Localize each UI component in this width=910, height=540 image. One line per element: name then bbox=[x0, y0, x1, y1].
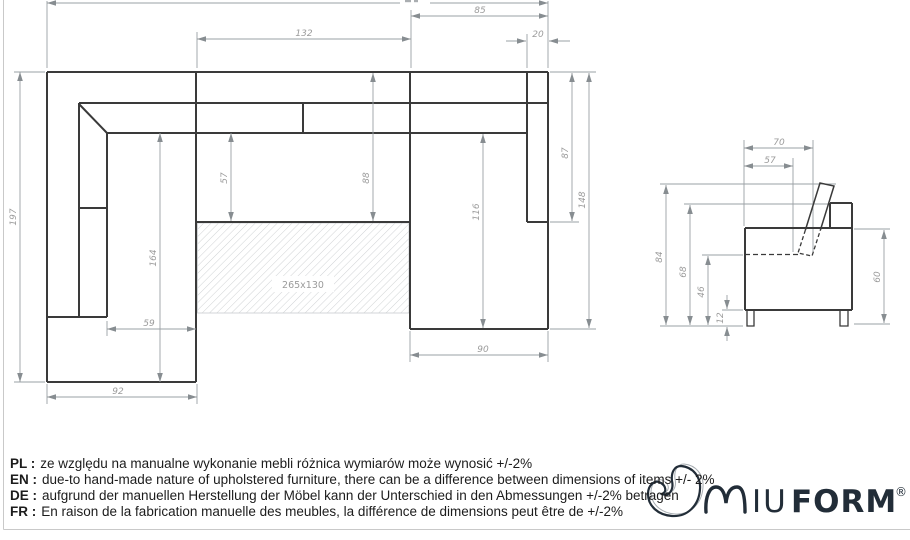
sofa-outline-side-view bbox=[745, 203, 852, 310]
dim-46-label: 46 bbox=[697, 286, 707, 298]
dim-84-label: 84 bbox=[655, 251, 665, 263]
mattress-size-label: 265x130 bbox=[282, 280, 324, 291]
dim-87-label: 87 bbox=[561, 147, 571, 159]
dim-60-label: 60 bbox=[873, 271, 883, 283]
note-text-de: aufgrund der manuellen Herstellung der M… bbox=[42, 488, 679, 503]
note-text-pl: ze względu na manualne wykonanie mebli r… bbox=[40, 456, 532, 471]
tolerance-notes: PL :ze względu na manualne wykonanie meb… bbox=[10, 456, 715, 520]
dimension-labels-side-view: 70 57 84 68 46 12 60 bbox=[655, 138, 883, 324]
top-view: 85 132 20 197 164 57 88 116 87 148 59 92… bbox=[9, 0, 596, 404]
dim-88-label: 88 bbox=[362, 172, 372, 184]
dim-132-label: 132 bbox=[295, 29, 312, 39]
headrest-tilted-hidden bbox=[798, 230, 820, 256]
extension-lines-top-view bbox=[14, 1, 596, 404]
dimension-lines-top-view bbox=[20, 3, 589, 397]
dim-90-label: 90 bbox=[477, 345, 489, 355]
spec-sheet-page: 85 132 20 197 164 57 88 116 87 148 59 92… bbox=[0, 0, 910, 540]
note-text-en: due-to hand-made nature of upholstered f… bbox=[42, 472, 715, 487]
sofa-legs-side-view bbox=[747, 310, 848, 326]
dim-197-label: 197 bbox=[9, 208, 19, 225]
note-lang-en: EN : bbox=[10, 472, 37, 487]
dim-148-label: 148 bbox=[578, 191, 588, 208]
dim-92-label: 92 bbox=[112, 387, 124, 397]
extension-lines-side-view bbox=[660, 140, 890, 326]
note-line-en: EN :due-to hand-made nature of upholster… bbox=[10, 472, 715, 488]
dim-116-label: 116 bbox=[472, 203, 482, 220]
dim-164-label: 164 bbox=[149, 249, 159, 266]
dim-70-label: 70 bbox=[773, 138, 785, 148]
dimension-labels-top-view: 85 132 20 197 164 57 88 116 87 148 59 92… bbox=[9, 6, 588, 397]
side-view: 70 57 84 68 46 12 60 bbox=[655, 138, 890, 341]
note-line-fr: FR :En raison de la fabrication manuelle… bbox=[10, 504, 715, 520]
note-lang-pl: PL : bbox=[10, 456, 35, 471]
note-line-de: DE :aufgrund der manuellen Herstellung d… bbox=[10, 488, 715, 504]
note-line-pl: PL :ze względu na manualne wykonanie meb… bbox=[10, 456, 715, 472]
dim-57s-label: 57 bbox=[764, 156, 776, 166]
dim-85-label: 85 bbox=[474, 6, 486, 16]
clipped-overall-dim-label bbox=[405, 0, 418, 2]
note-lang-fr: FR : bbox=[10, 504, 36, 519]
dim-12-label: 12 bbox=[716, 312, 726, 324]
dim-68-label: 68 bbox=[679, 266, 689, 278]
dim-57-label: 57 bbox=[220, 172, 230, 184]
note-lang-de: DE : bbox=[10, 488, 37, 503]
dim-20-label: 20 bbox=[532, 30, 544, 40]
logo-iu-text: IU bbox=[752, 484, 788, 520]
dim-59-label: 59 bbox=[143, 319, 155, 329]
logo-form-text: FORM bbox=[791, 484, 897, 520]
note-text-fr: En raison de la fabrication manuelle des… bbox=[41, 504, 623, 519]
logo-registered-mark: ® bbox=[895, 485, 907, 499]
sheet-frame bbox=[4, 0, 910, 530]
mattress-hatch-area bbox=[198, 223, 410, 313]
